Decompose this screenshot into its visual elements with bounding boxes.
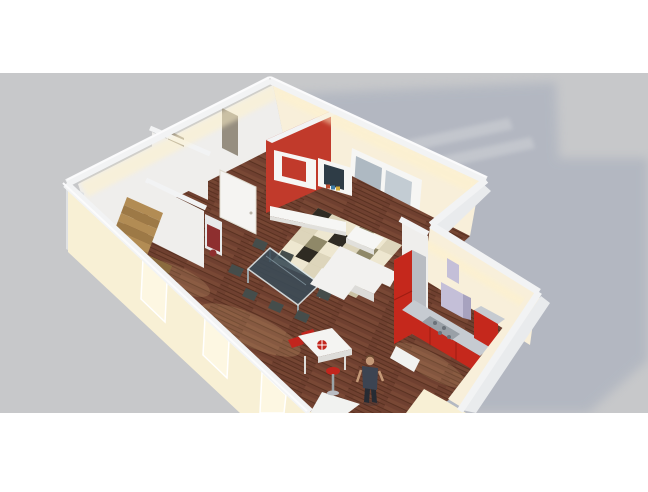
burner (442, 326, 446, 330)
free-stool-seat (326, 367, 340, 375)
burner (438, 331, 442, 335)
letterbox-top (0, 0, 648, 73)
door-handle (250, 212, 253, 215)
burner (447, 335, 451, 339)
shelf-books (331, 186, 335, 190)
person-torso (362, 366, 378, 390)
person-head (366, 357, 374, 365)
stool-base (327, 391, 339, 396)
burner (433, 321, 437, 325)
letterbox-bottom (0, 413, 648, 492)
render-stage (0, 0, 648, 492)
person-leg (364, 388, 370, 403)
shelf-books (326, 185, 330, 189)
shelf-books (336, 187, 340, 191)
radiator-valve (210, 250, 217, 257)
hood-side (463, 294, 471, 320)
